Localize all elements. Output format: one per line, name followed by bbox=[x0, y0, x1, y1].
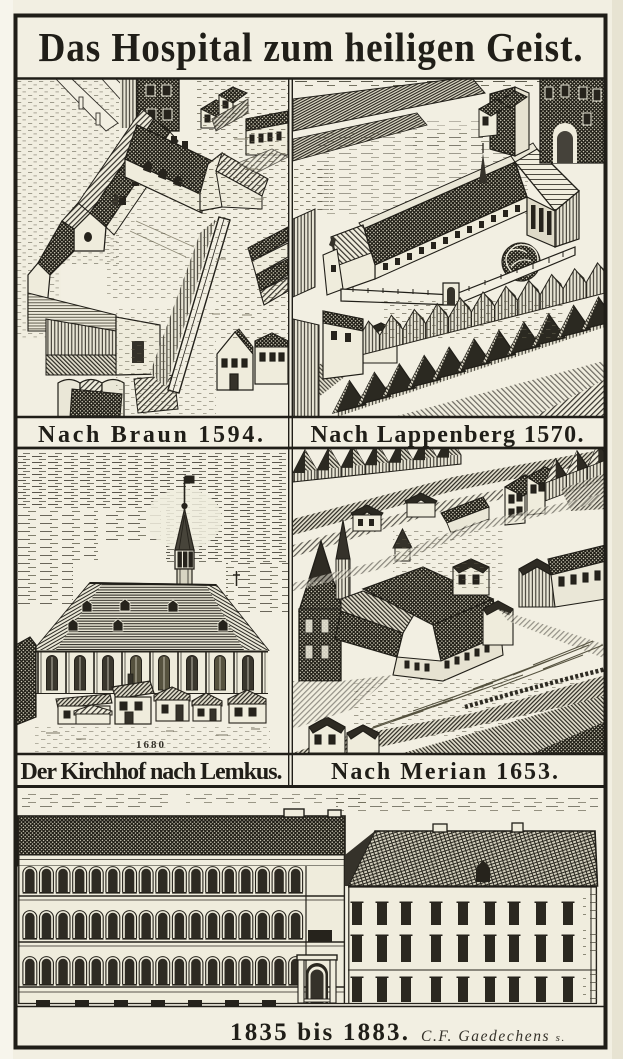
svg-text:Nach Merian 1653.: Nach Merian 1653. bbox=[331, 759, 561, 785]
svg-text:Das Hospital zum heiligen Geis: Das Hospital zum heiligen Geist. bbox=[39, 24, 584, 70]
svg-text:Nach Braun 1594.: Nach Braun 1594. bbox=[38, 422, 266, 448]
svg-text:Der Kirchhof nach Lemkus.: Der Kirchhof nach Lemkus. bbox=[21, 759, 284, 785]
svg-text:C.F. Gaedechens s.: C.F. Gaedechens s. bbox=[421, 1028, 566, 1045]
svg-text:Nach Lappenberg 1570.: Nach Lappenberg 1570. bbox=[311, 422, 586, 448]
svg-text:1835 bis 1883.: 1835 bis 1883. bbox=[230, 1019, 410, 1046]
